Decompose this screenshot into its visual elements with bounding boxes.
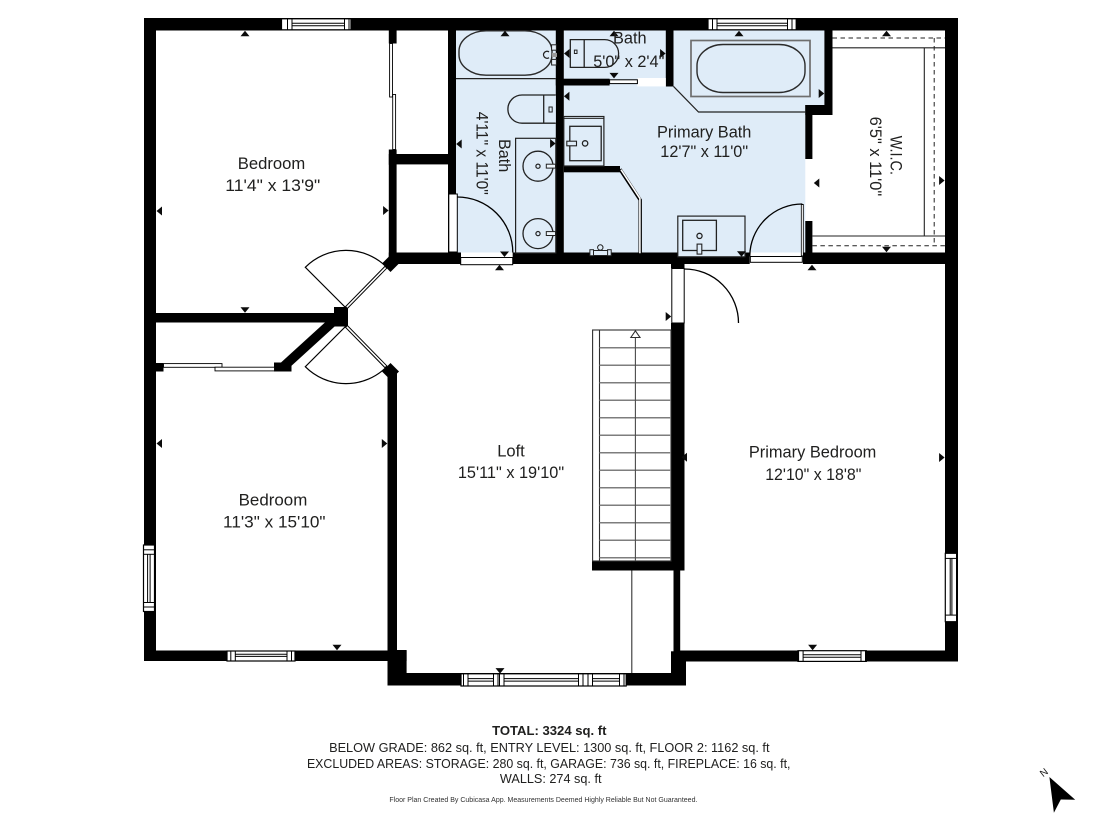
svg-text:12'7" x 11'0": 12'7" x 11'0" [660,142,748,161]
svg-text:Floor Plan Created By Cubicasa: Floor Plan Created By Cubicasa App. Meas… [389,797,697,804]
svg-text:BELOW GRADE: 862 sq. ft, ENTRY: BELOW GRADE: 862 sq. ft, ENTRY LEVEL: 13… [329,741,770,755]
svg-text:4'11" x 11'0": 4'11" x 11'0" [473,112,492,195]
svg-text:Bath: Bath [495,139,514,172]
svg-text:Primary Bath: Primary Bath [657,122,751,141]
svg-text:12'10" x 18'8": 12'10" x 18'8" [765,465,861,484]
svg-text:TOTAL: 3324 sq. ft: TOTAL: 3324 sq. ft [492,723,607,738]
svg-text:Primary Bedroom: Primary Bedroom [749,443,877,462]
svg-text:Bedroom: Bedroom [239,491,308,510]
svg-text:W.I.C.: W.I.C. [887,136,906,175]
svg-text:Loft: Loft [497,442,525,461]
svg-text:6'5" x 11'0": 6'5" x 11'0" [866,117,885,197]
svg-text:Bath: Bath [613,28,647,47]
svg-text:5'0" x 2'4": 5'0" x 2'4" [593,52,664,71]
svg-text:11'4" x 13'9": 11'4" x 13'9" [225,176,320,195]
svg-text:15'11" x 19'10": 15'11" x 19'10" [458,463,564,482]
svg-text:11'3" x 15'10": 11'3" x 15'10" [223,513,326,532]
svg-text:Bedroom: Bedroom [238,154,306,173]
svg-text:EXCLUDED AREAS: STORAGE: 280 s: EXCLUDED AREAS: STORAGE: 280 sq. ft, GAR… [307,757,791,771]
svg-text:WALLS: 274 sq. ft: WALLS: 274 sq. ft [500,772,602,786]
